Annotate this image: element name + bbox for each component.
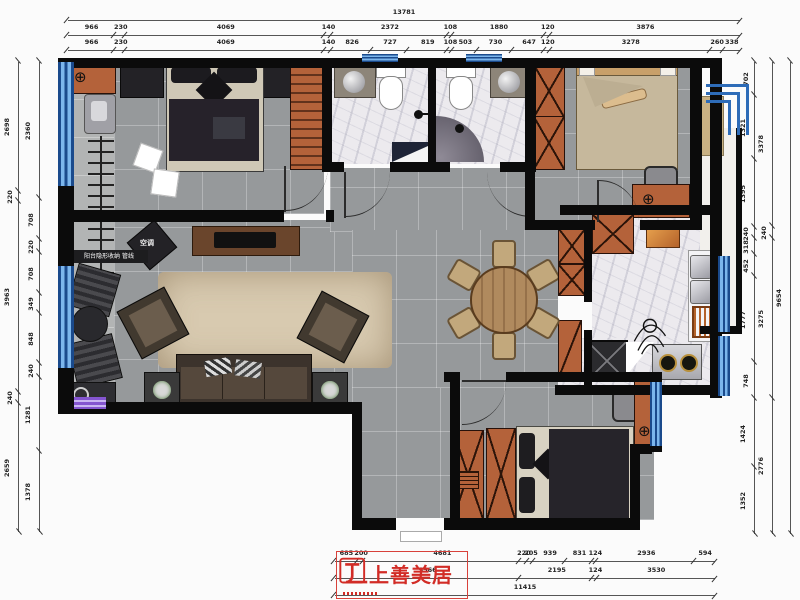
bath1-counter (334, 66, 376, 98)
dim-top-minor: 9662304069140826727819108503730647120327… (68, 38, 740, 51)
wall-master-bottom (60, 210, 284, 222)
wall-bottom-bedroom3 (444, 518, 640, 530)
dim-label: 13781 (393, 8, 416, 16)
bedroom2-wardrobe (533, 64, 565, 118)
dim-segment: 730 (478, 38, 514, 51)
dim-segment: 2776 (760, 399, 773, 535)
floor-plan-canvas: 13781 9662304069140237210818801203876 96… (0, 0, 800, 600)
wall-bath-sill (390, 162, 450, 172)
master-bed (166, 64, 264, 172)
dim-label: 708 (27, 213, 35, 227)
sink-basin (91, 101, 107, 121)
dim-label: 240 (742, 227, 750, 241)
dim-segment: 594 (695, 549, 715, 562)
tv-console (192, 226, 300, 256)
toilet1-bowl (379, 76, 403, 110)
toilet2-bowl (449, 76, 473, 110)
dim-right-middle: 337824032752776 (760, 62, 773, 534)
dim-segment: 3876 (551, 23, 740, 36)
brand-subtext (343, 592, 377, 595)
dim-label: 2659 (3, 459, 11, 477)
shower-mixer (455, 124, 464, 133)
wall-kitchen-top (560, 205, 712, 215)
dim-segment: 2936 (597, 549, 695, 562)
dim-label: 9654 (775, 289, 783, 307)
dim-segment: 2698 (6, 62, 19, 192)
dim-segment: 826 (332, 38, 372, 51)
dim-segment: 1281 (27, 378, 40, 452)
dim-label: 349 (27, 297, 35, 311)
dim-segment: 503 (453, 38, 478, 51)
dim-label: 730 (489, 38, 503, 46)
dim-segment: 966 (68, 23, 115, 36)
dim-segment: 3530 (598, 566, 716, 579)
bath2-counter (490, 66, 528, 98)
dim-label: 3278 (622, 38, 640, 46)
dim-segment: 1424 (742, 399, 755, 468)
dim-segment: 748 (742, 363, 755, 399)
dim-label: 11415 (514, 583, 537, 591)
window-corner-step (706, 100, 731, 135)
wall-corridor-bedroom3 (450, 372, 460, 520)
mat-fold (392, 146, 428, 162)
dim-label: 647 (522, 38, 536, 46)
dim-segment: 1395 (742, 160, 755, 228)
wall-kitchen-bottom (555, 385, 722, 395)
dim-label: 318 (742, 240, 750, 254)
wall-bedroom2-bottom-left (535, 220, 595, 230)
dim-label: 240 (760, 226, 768, 240)
bath1-mat (392, 142, 428, 162)
dim-label: 1424 (739, 425, 747, 443)
dim-segment: 1378 (27, 452, 40, 532)
dim-segment: 3378 (760, 62, 773, 227)
dim-left-outer: 269822039632402659 (6, 62, 19, 532)
wall-left-mid (58, 186, 74, 266)
wall-bedroom3-right-lower (630, 448, 640, 530)
dim-segment: 1352 (742, 468, 755, 534)
wall-master-right (322, 58, 332, 170)
wall-bottom-entry-left (352, 518, 396, 530)
window-kitchen-lower (718, 336, 730, 396)
wall-bedroom2-left (525, 58, 535, 230)
dim-label: 240 (27, 364, 35, 378)
sofa (176, 354, 312, 404)
dim-label: 4069 (217, 38, 235, 46)
dim-label: 708 (27, 267, 35, 281)
dim-segment: 13781 (68, 8, 740, 21)
dim-label: 338 (725, 38, 739, 46)
dim-segment: 3275 (760, 239, 773, 399)
dim-segment: 2195 (520, 566, 593, 579)
dim-label: 819 (421, 38, 435, 46)
dim-segment: 2372 (332, 23, 448, 36)
dim-label: 939 (543, 549, 557, 557)
dim-segment: 4069 (126, 23, 325, 36)
window-bedroom3 (650, 382, 662, 446)
dim-segment: 3278 (551, 38, 711, 51)
dim-label: 2372 (381, 23, 399, 31)
dim-label: 240 (6, 392, 14, 406)
dim-label: 260 (710, 38, 724, 46)
person-figure (630, 312, 668, 356)
dim-label: 966 (85, 23, 99, 31)
armchair-cushion (309, 303, 358, 352)
dim-segment: 2360 (27, 62, 40, 199)
wall-kitchen-left-upper (584, 230, 592, 302)
dim-label: 4069 (217, 23, 235, 31)
dim-label: 966 (85, 38, 99, 46)
window-kitchen-upper (718, 256, 730, 332)
dim-label: 2195 (548, 566, 566, 574)
duvet (549, 429, 629, 519)
dim-segment: 4069 (126, 38, 325, 51)
dining-cabinet (558, 264, 586, 296)
dim-label: 2360 (24, 121, 32, 139)
window-bath1 (362, 54, 398, 62)
dim-segment: 708 (27, 253, 40, 294)
dining-table (470, 266, 538, 334)
bed-throw (213, 117, 245, 139)
bath2-basin (498, 71, 520, 93)
ac-label: 空调 (140, 238, 154, 248)
dim-label: 2936 (637, 549, 655, 557)
burner (680, 354, 698, 372)
dim-segment: 9654 (778, 62, 791, 534)
dim-label: 3378 (757, 135, 765, 153)
dim-segment: 2659 (6, 404, 19, 532)
window-bath2 (466, 54, 502, 62)
armchair-cushion (129, 299, 178, 348)
dim-top-total: 13781 (68, 8, 740, 21)
dim-label: 3530 (647, 566, 665, 574)
dim-segment: 848 (27, 314, 40, 363)
dim-label: 831 (573, 549, 587, 557)
floor-cushion (150, 168, 179, 197)
balcony-note: 阳台隐形收纳 管线 (70, 250, 148, 263)
dim-label: 1880 (490, 23, 508, 31)
dim-label: 2698 (3, 118, 11, 136)
nightstand-left (120, 66, 164, 98)
dim-label: 1378 (24, 483, 32, 501)
sink-bowl (690, 280, 712, 304)
dim-segment: 727 (372, 38, 408, 51)
dim-right-outer: 9654 (778, 62, 791, 534)
dim-label: 3963 (3, 288, 11, 306)
dim-segment: 939 (534, 549, 565, 562)
wall-balcony-right (736, 128, 742, 332)
dim-top-major: 9662304069140237210818801203876 (68, 23, 740, 36)
plant (321, 381, 339, 399)
dim-label: 594 (698, 549, 712, 557)
tv (214, 232, 276, 248)
bedroom2-bed (576, 60, 678, 170)
wall-corridor-left (352, 402, 362, 530)
window-left-top (58, 62, 74, 186)
dim-left-inner: 236070822070834984824012811378 (27, 62, 40, 532)
dim-label: 452 (742, 259, 750, 273)
bedroom3-wardrobe (486, 428, 516, 520)
dim-label: 220 (27, 240, 35, 254)
plant (153, 381, 171, 399)
mop-sink (84, 94, 116, 134)
dim-segment: 1777 (742, 277, 755, 363)
dim-segment: 708 (27, 199, 40, 240)
dim-segment: 1880 (453, 23, 545, 36)
dim-label: 748 (742, 374, 750, 388)
pillow (519, 477, 535, 513)
dim-segment: 3963 (6, 202, 19, 392)
burner (659, 354, 677, 372)
bath1-basin (343, 71, 365, 93)
dining-chair (492, 240, 516, 268)
dim-label: 3876 (636, 23, 654, 31)
dim-label: 2776 (757, 457, 765, 475)
dim-segment: 819 (408, 38, 448, 51)
bedroom3-bed (516, 426, 634, 522)
wall-bedroom3-top-left (444, 372, 458, 382)
window-left-bottom (58, 266, 74, 368)
brand-monogram-icon (339, 557, 369, 593)
dim-label: 848 (27, 332, 35, 346)
bedroom2-wardrobe (533, 116, 565, 170)
dim-label: 727 (383, 38, 397, 46)
wall-bath-divider (428, 58, 436, 162)
entry-step (400, 531, 442, 542)
wall-bedroom3-top (506, 372, 662, 382)
balcony-side-table (72, 306, 108, 342)
dim-segment: 966 (68, 38, 115, 51)
dim-label: 1281 (24, 406, 32, 424)
dim-label: 503 (459, 38, 473, 46)
dining-chair (492, 332, 516, 360)
dim-label: 1352 (739, 492, 747, 510)
heater-strip (74, 397, 106, 409)
drawer-unit (457, 471, 479, 489)
bath-cabinet (558, 320, 582, 378)
target-symbol-icon: ⊕ (74, 70, 87, 85)
wall-master-bottom-end (326, 210, 334, 222)
wall-bath-sill (322, 162, 344, 172)
dim-segment: 338 (724, 38, 741, 51)
entry-opening (396, 518, 444, 530)
target-symbol-icon: ⊕ (638, 424, 651, 439)
brand-logo: 上善美居 (336, 551, 468, 599)
dim-label: 826 (345, 38, 359, 46)
brand-name: 上善美居 (369, 564, 453, 586)
sink-bowl (690, 255, 712, 279)
dim-label: 3275 (757, 310, 765, 328)
master-wardrobe (290, 64, 326, 170)
dining-cabinet (558, 228, 586, 264)
sofa-pillow (234, 359, 262, 378)
